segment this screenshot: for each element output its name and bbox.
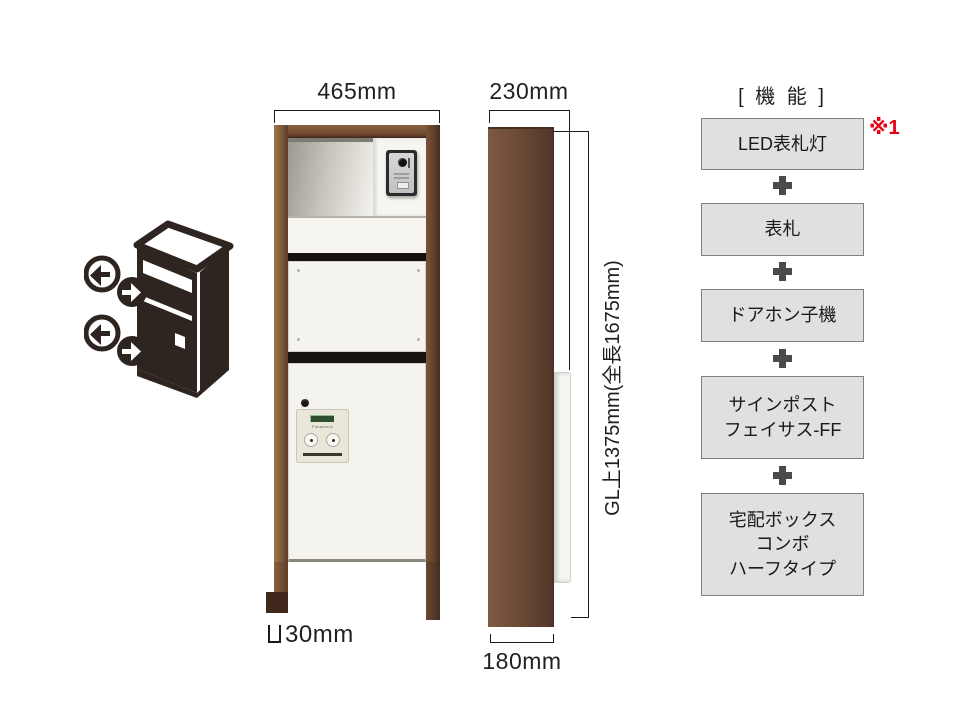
plus-icon bbox=[773, 349, 792, 368]
product-spec-diagram: 465mm Panasonic 30mm 230mm bbox=[0, 0, 966, 707]
doorphone-intercom bbox=[386, 150, 417, 196]
keyhole-icon bbox=[301, 399, 309, 407]
front-frame-left-post bbox=[274, 125, 288, 607]
intercom-face bbox=[389, 153, 414, 193]
feature-box-doorphone: ドアホン子機 bbox=[701, 289, 864, 342]
side-view-column bbox=[488, 127, 554, 627]
panel-gap bbox=[288, 352, 426, 363]
front-width-dimline bbox=[274, 110, 440, 111]
plus-icon bbox=[773, 466, 792, 485]
front-frame-right-post bbox=[426, 125, 440, 607]
signpost-top-panel bbox=[288, 216, 426, 253]
leg-width-dimension: 30mm bbox=[268, 621, 354, 649]
status-display bbox=[310, 415, 334, 422]
feature-list-header: [ 機 能 ] bbox=[701, 80, 864, 109]
front-frame-top bbox=[274, 125, 440, 138]
call-button bbox=[397, 182, 409, 189]
reference-note: ※1 bbox=[869, 115, 900, 140]
plus-icon bbox=[773, 262, 792, 281]
dial-right bbox=[326, 433, 340, 447]
feature-box-nameplate: 表札 bbox=[701, 203, 864, 256]
delivery-box-control-panel: Panasonic bbox=[296, 409, 349, 463]
side-view-box-protrusion bbox=[554, 372, 571, 583]
brand-label: Panasonic bbox=[297, 424, 348, 429]
feature-box-led-nameplate-light: LED表札灯 bbox=[701, 118, 864, 170]
depth-dimension: 230mm bbox=[484, 78, 574, 105]
access-direction-pictogram-icon bbox=[84, 216, 238, 398]
depth-dimline bbox=[489, 110, 570, 111]
feature-box-signpost: サインポスト フェイサス-FF bbox=[701, 376, 864, 459]
dial-left bbox=[304, 433, 318, 447]
base-depth-dimline bbox=[490, 642, 554, 643]
front-width-dimension: 465mm bbox=[274, 78, 440, 105]
leg-profile-symbol bbox=[268, 625, 281, 643]
height-dimension: GL上1375mm(全長1675mm) bbox=[596, 218, 620, 558]
mailbox-door bbox=[288, 261, 426, 352]
plus-icon bbox=[773, 176, 792, 195]
speaker-slot-icon bbox=[408, 158, 410, 168]
feature-box-delivery-box: 宅配ボックス コンボ ハーフタイプ bbox=[701, 493, 864, 596]
height-dimline bbox=[588, 131, 589, 618]
base-depth-dimension: 180mm bbox=[477, 648, 567, 675]
card-slot bbox=[303, 453, 342, 456]
front-left-foot bbox=[266, 592, 288, 613]
front-right-leg bbox=[426, 562, 440, 620]
camera-lens-icon bbox=[398, 158, 407, 167]
panel-gap bbox=[288, 253, 426, 261]
